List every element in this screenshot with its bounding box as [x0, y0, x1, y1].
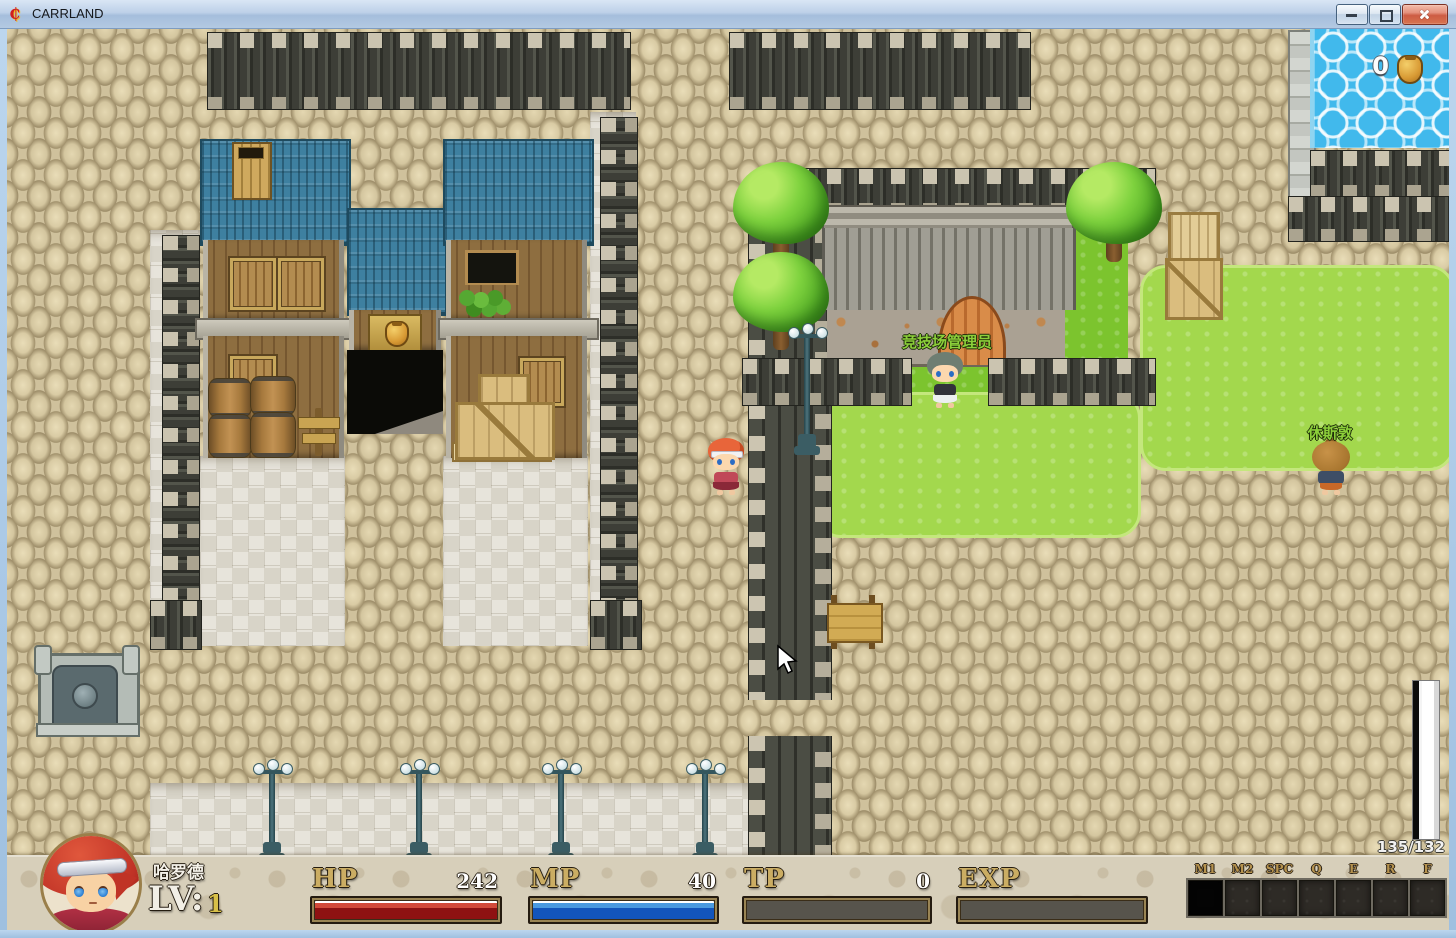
mouse-cursor — [775, 644, 799, 681]
side-gauge — [1412, 680, 1440, 840]
street-lamp — [683, 758, 727, 862]
hotkey-slot-q[interactable]: Q — [1299, 862, 1334, 918]
hp-bar — [310, 896, 502, 924]
window-titlebar: ₵ CARRLAND — [0, 0, 1456, 29]
stone-gate — [38, 645, 134, 735]
exp-label: EXP — [958, 864, 1021, 894]
hud-bar: 哈罗德 LV: 1 HP 242 MP 40 TP 0 EXP M1 M2 SP… — [7, 855, 1449, 930]
player-character[interactable] — [704, 436, 748, 496]
level-label: LV: — [148, 879, 203, 919]
window-title: CARRLAND — [32, 6, 104, 21]
npc-houston[interactable] — [1310, 438, 1352, 496]
fence-corner-right — [590, 600, 642, 650]
npc-label-houston: 休斯敦 — [1270, 422, 1390, 443]
crate-large — [455, 402, 555, 460]
money-bag-icon — [1397, 55, 1423, 84]
barrel — [208, 414, 252, 458]
fence-path-right — [600, 117, 638, 603]
app-icon: ₵ — [9, 5, 27, 23]
tp-value: 0 — [916, 869, 930, 893]
mp-bar — [528, 896, 719, 924]
building-right-vent — [465, 250, 519, 285]
gold-amount: 0 — [1337, 52, 1389, 80]
street-lamp — [250, 758, 294, 862]
hotkey-slot-m1[interactable]: M1 — [1188, 862, 1223, 918]
wooden-signpost — [298, 408, 338, 456]
courtyard-right — [443, 456, 588, 646]
street-lamp — [397, 758, 441, 862]
grass-patch-south — [815, 392, 1141, 538]
pond-fence-lower — [1288, 196, 1449, 242]
barrel — [250, 412, 296, 458]
building-left-window-2 — [278, 258, 324, 310]
street-lamp — [539, 758, 583, 862]
exp-bar-group: EXP — [956, 864, 1148, 926]
courtyard-left — [200, 456, 345, 646]
plant — [459, 290, 475, 306]
hp-bar-group: HP 242 — [310, 864, 502, 926]
window-border-right — [1449, 28, 1456, 930]
mp-value: 40 — [688, 869, 716, 893]
fence-path-left — [162, 235, 200, 603]
hotkey-slot-e[interactable]: E — [1336, 862, 1371, 918]
bottom-promenade — [150, 783, 774, 861]
building-middle-roof — [347, 208, 447, 316]
character-portrait[interactable] — [40, 833, 142, 930]
arena-fence-southeast — [988, 358, 1156, 406]
building-left-window-1 — [230, 258, 276, 310]
maximize-button[interactable] — [1369, 4, 1401, 25]
mp-label: MP — [530, 864, 580, 894]
minimize-button[interactable] — [1336, 4, 1368, 25]
pond-fence-upper — [1310, 150, 1449, 198]
tp-bar — [742, 896, 932, 924]
dark-road-vertical-lower — [748, 736, 832, 860]
chimney-opening — [238, 147, 264, 159]
street-lamp — [785, 322, 829, 456]
hotkey-bar: M1 M2 SPC Q E R F — [1188, 862, 1445, 918]
hotkey-slot-spc[interactable]: SPC — [1262, 862, 1297, 918]
mp-bar-group: MP 40 — [528, 864, 720, 926]
tree — [1066, 162, 1162, 266]
fence-corner-left — [150, 600, 202, 650]
barrel — [208, 378, 252, 418]
game-viewport[interactable]: 竞技场管理员 休斯敦 0 135/132 哈罗德 LV: 1 HP 242 MP… — [7, 28, 1449, 930]
chimney — [232, 142, 272, 200]
arena-wall — [822, 228, 1076, 310]
hotkey-slot-r[interactable]: R — [1373, 862, 1408, 918]
entrance-floor — [375, 406, 443, 434]
npc-label-arena-manager: 竞技场管理员 — [857, 331, 1037, 352]
money-bag-sign-icon — [385, 321, 409, 347]
wooden-notice-board — [827, 595, 879, 651]
minimize-icon — [1346, 14, 1357, 17]
building-left-roof — [200, 139, 351, 246]
fence-top-east — [729, 32, 1031, 110]
hotkey-slot-m2[interactable]: M2 — [1225, 862, 1260, 918]
maximize-icon — [1380, 10, 1393, 22]
close-button[interactable] — [1402, 4, 1448, 25]
hotkey-slot-f[interactable]: F — [1410, 862, 1445, 918]
shop-sign — [368, 314, 422, 352]
crate-stack-bottom — [1165, 258, 1223, 320]
fence-top-west — [207, 32, 631, 110]
window-border-left — [0, 28, 7, 930]
tp-bar-group: TP 0 — [742, 864, 934, 926]
level-value: 1 — [207, 889, 224, 918]
barrel — [250, 376, 296, 416]
building-right-roof — [443, 139, 594, 246]
hp-label: HP — [312, 864, 358, 894]
hp-value: 242 — [456, 869, 498, 893]
building-middle-entrance — [347, 350, 443, 434]
tp-label: TP — [744, 864, 785, 894]
fps-counter: 135/132 — [1345, 838, 1445, 856]
tree — [733, 162, 829, 266]
exp-bar — [956, 896, 1148, 924]
npc-arena-manager[interactable] — [924, 352, 966, 408]
pond — [1310, 28, 1449, 148]
window-border-bottom — [0, 930, 1456, 938]
